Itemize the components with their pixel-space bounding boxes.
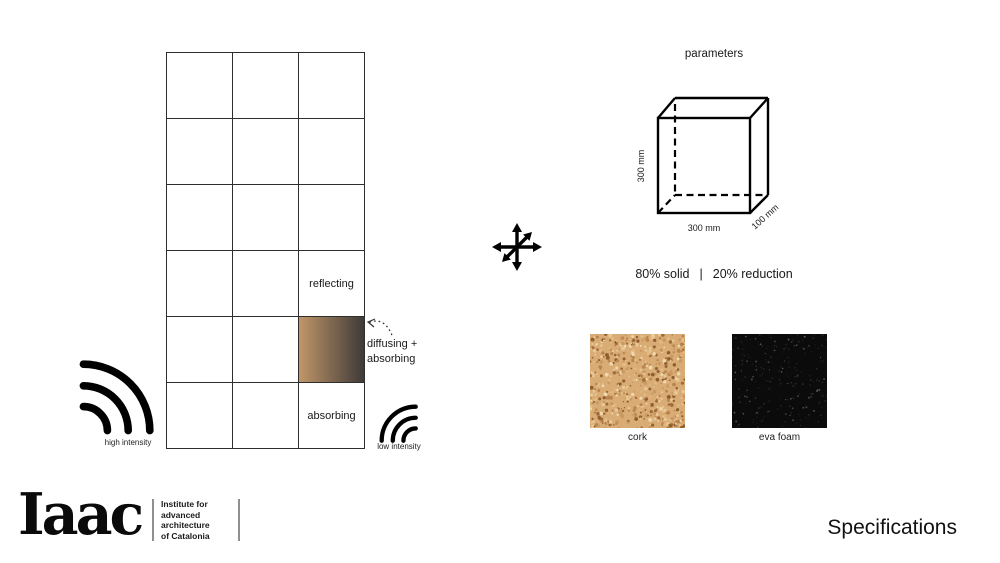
grid-cell xyxy=(233,251,299,317)
solid-reduction-separator: | xyxy=(700,267,703,281)
solid-label: 80% solid xyxy=(635,267,689,281)
move-directions-icon xyxy=(491,222,544,273)
reduction-label: 20% reduction xyxy=(713,267,793,281)
institute-line: advanced xyxy=(161,510,210,521)
institute-line: of Catalonia xyxy=(161,531,210,542)
diffusing-absorbing-label: diffusing + absorbing xyxy=(367,337,417,366)
solid-reduction-row: 80% solid | 20% reduction xyxy=(614,267,814,281)
page-title: Specifications xyxy=(757,516,957,540)
low-intensity-label: low intensity xyxy=(366,442,432,451)
cube-width-label: 300 mm xyxy=(688,223,721,233)
cube-diagram: 300 mm 300 mm 100 mm xyxy=(630,90,795,240)
grid-cell xyxy=(167,251,233,317)
diffusing-label-line1: diffusing + xyxy=(367,337,417,352)
cork-swatch xyxy=(590,334,685,428)
grid-cell xyxy=(233,317,299,383)
absorbing-cell: absorbing xyxy=(299,383,365,449)
cork-label: cork xyxy=(590,432,685,443)
grid-cell xyxy=(233,119,299,185)
low-intensity-wave-icon xyxy=(377,403,420,444)
grid-cell xyxy=(233,185,299,251)
grid-cell xyxy=(167,185,233,251)
eva-foam-swatch xyxy=(732,334,827,428)
diffusing-label-line2: absorbing xyxy=(367,352,417,367)
reflecting-label: reflecting xyxy=(309,278,354,290)
grid-cell xyxy=(233,53,299,119)
institute-name: Institute for advanced architecture of C… xyxy=(161,499,210,542)
high-intensity-wave-icon xyxy=(76,357,158,437)
logo-divider-right xyxy=(238,499,240,541)
grid-cell xyxy=(167,383,233,449)
grid-cell xyxy=(167,119,233,185)
grid-cell xyxy=(167,317,233,383)
cube-height-label: 300 mm xyxy=(636,150,646,183)
absorbing-label: absorbing xyxy=(307,410,355,422)
grid-cell xyxy=(299,185,365,251)
institute-line: Institute for xyxy=(161,499,210,510)
reflecting-cell: reflecting xyxy=(299,251,365,317)
grid-cell xyxy=(299,119,365,185)
grid-cell xyxy=(167,53,233,119)
cube-depth-label: 100 mm xyxy=(750,202,781,231)
institute-line: architecture xyxy=(161,520,210,531)
logo-divider-left xyxy=(152,499,154,541)
eva-foam-label: eva foam xyxy=(732,432,827,443)
acoustic-grid: reflecting absorbing xyxy=(166,52,365,449)
slide: reflecting absorbing high intensity low … xyxy=(0,0,1000,563)
parameters-title: parameters xyxy=(649,48,779,60)
grid-cell xyxy=(299,53,365,119)
high-intensity-label: high intensity xyxy=(92,438,164,447)
iaac-logo: Iaac xyxy=(18,486,141,543)
grid-cell xyxy=(233,383,299,449)
diffusing-cell xyxy=(299,317,365,383)
